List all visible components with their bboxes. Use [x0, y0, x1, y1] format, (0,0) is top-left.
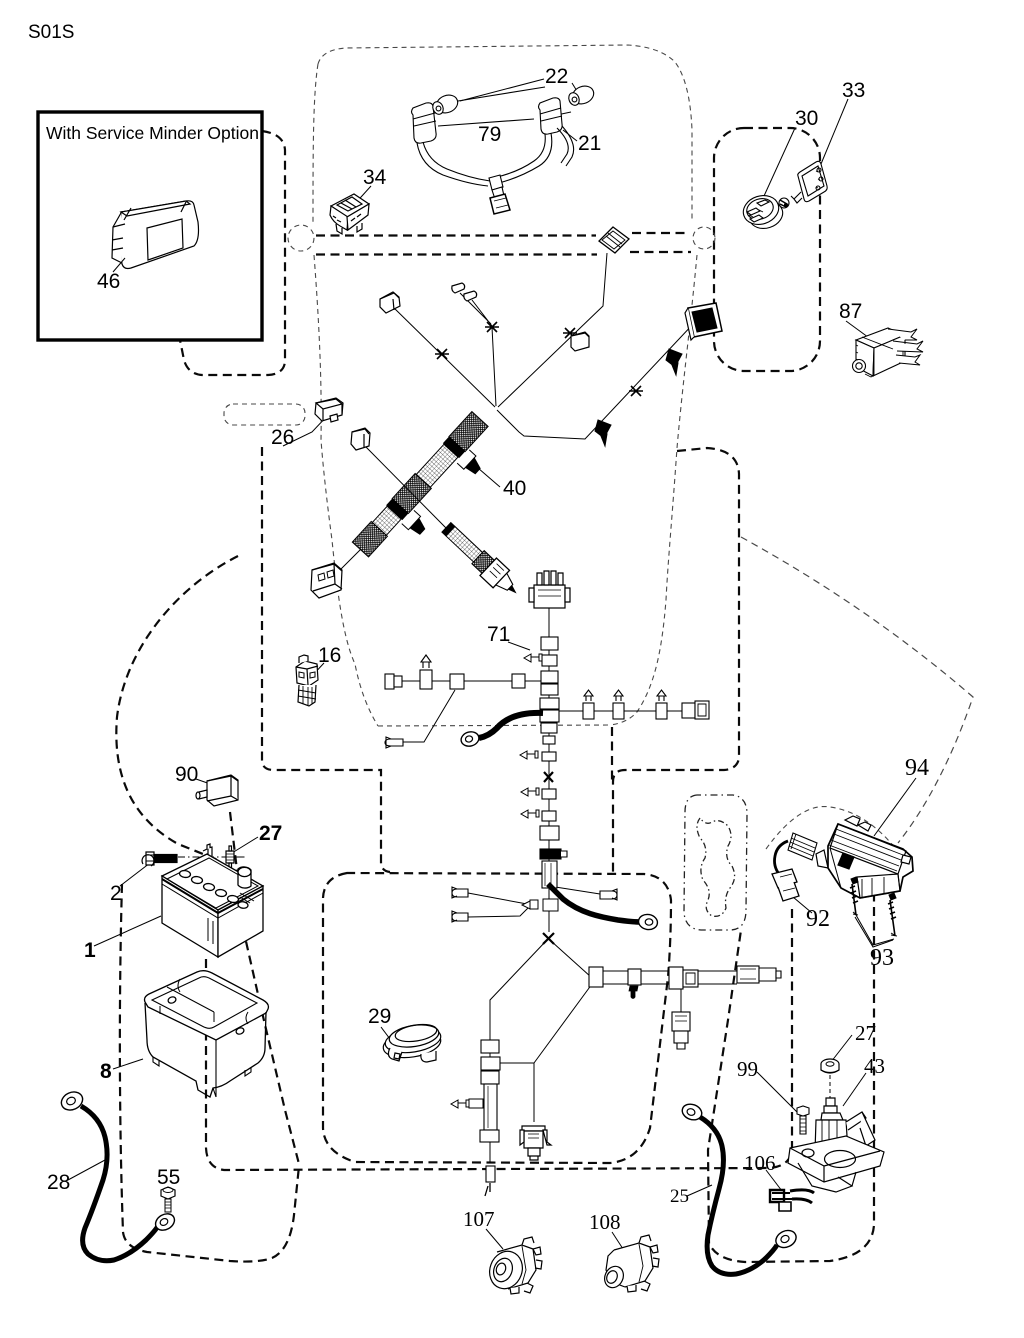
svg-text:8: 8 — [100, 1060, 112, 1083]
svg-text:16: 16 — [318, 644, 341, 667]
svg-text:40: 40 — [503, 477, 526, 500]
svg-text:33: 33 — [842, 79, 865, 102]
svg-text:1: 1 — [84, 939, 96, 962]
svg-text:25: 25 — [670, 1186, 689, 1207]
svg-text:28: 28 — [47, 1171, 70, 1194]
svg-text:87: 87 — [839, 300, 862, 323]
svg-text:26: 26 — [271, 426, 294, 449]
svg-text:21: 21 — [578, 132, 601, 155]
svg-text:S01S: S01S — [28, 22, 74, 43]
svg-text:99: 99 — [737, 1057, 758, 1081]
svg-text:29: 29 — [368, 1005, 391, 1028]
svg-text:55: 55 — [157, 1166, 180, 1189]
svg-text:106: 106 — [744, 1151, 776, 1175]
svg-text:27: 27 — [259, 822, 282, 845]
svg-text:90: 90 — [175, 763, 198, 786]
svg-text:108: 108 — [589, 1210, 621, 1234]
svg-text:34: 34 — [363, 166, 387, 189]
svg-text:71: 71 — [487, 623, 510, 646]
svg-text:46: 46 — [97, 270, 120, 293]
svg-text:92: 92 — [806, 906, 830, 932]
svg-text:27: 27 — [855, 1021, 876, 1045]
svg-text:107: 107 — [463, 1207, 495, 1231]
svg-text:22: 22 — [545, 65, 568, 88]
svg-text:79: 79 — [478, 123, 501, 146]
svg-text:With Service Minder Option: With Service Minder Option — [46, 123, 259, 143]
svg-text:94: 94 — [905, 755, 929, 781]
svg-text:30: 30 — [795, 107, 818, 130]
